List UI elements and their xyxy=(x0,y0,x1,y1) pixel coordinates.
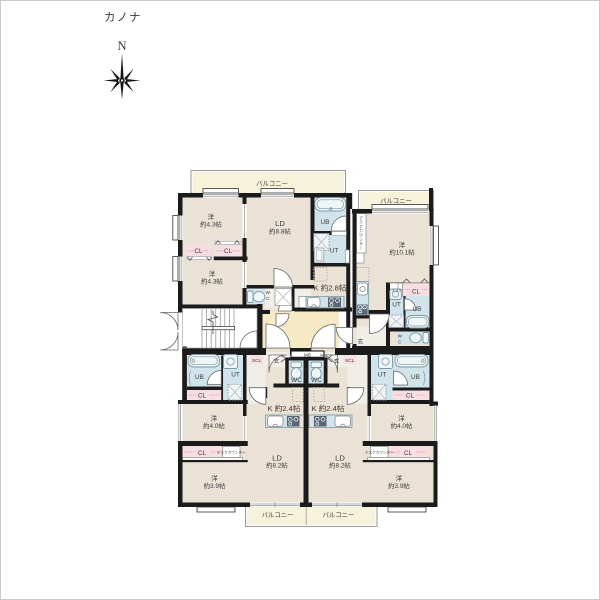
svg-text:SCL: SCL xyxy=(252,358,262,364)
svg-text:玄: 玄 xyxy=(358,338,364,346)
svg-text:洋: 洋 xyxy=(208,212,215,221)
svg-text:約10.1帖: 約10.1帖 xyxy=(389,248,415,257)
svg-text:デスクカウンター: デスクカウンター xyxy=(365,450,394,455)
svg-text:約3.9帖: 約3.9帖 xyxy=(388,481,410,490)
svg-text:バルコニー: バルコニー xyxy=(323,511,355,519)
svg-text:洋: 洋 xyxy=(211,474,218,483)
svg-text:バルコニー: バルコニー xyxy=(256,180,288,188)
svg-text:WC: WC xyxy=(311,377,322,384)
svg-text:CL: CL xyxy=(412,289,420,296)
svg-text:洋: 洋 xyxy=(396,474,403,483)
svg-text:CL: CL xyxy=(195,248,203,255)
svg-text:LD: LD xyxy=(335,453,345,462)
svg-text:MB: MB xyxy=(304,353,311,358)
svg-text:デスクカウンター: デスクカウンター xyxy=(217,450,246,455)
svg-text:約4.3帖: 約4.3帖 xyxy=(201,277,223,286)
svg-text:CL: CL xyxy=(198,393,206,400)
svg-text:約4.0帖: 約4.0帖 xyxy=(203,421,225,430)
svg-text:カノナ: カノナ xyxy=(104,11,142,24)
svg-text:CL: CL xyxy=(404,450,412,457)
svg-text:K 約2.4帖: K 約2.4帖 xyxy=(312,403,345,413)
svg-text:K 約2.4帖: K 約2.4帖 xyxy=(268,403,301,413)
svg-text:バルコニー: バルコニー xyxy=(262,511,294,519)
svg-text:W: W xyxy=(398,334,403,339)
svg-text:UT: UT xyxy=(392,302,401,309)
svg-text:LD: LD xyxy=(275,219,285,228)
svg-text:LD: LD xyxy=(272,453,282,462)
svg-text:デスク: デスク xyxy=(392,288,403,293)
svg-text:CL: CL xyxy=(406,393,414,400)
svg-text:デスクカウンター: デスクカウンター xyxy=(358,215,363,250)
svg-text:UB: UB xyxy=(195,374,204,381)
svg-text:洋: 洋 xyxy=(211,414,218,423)
svg-text:CL: CL xyxy=(224,248,232,255)
svg-text:約4.3帖: 約4.3帖 xyxy=(200,220,222,229)
svg-text:UT: UT xyxy=(231,372,240,379)
svg-text:洋: 洋 xyxy=(399,240,406,249)
svg-text:SCL: SCL xyxy=(345,358,355,364)
svg-text:CL: CL xyxy=(198,450,206,457)
svg-text:UT: UT xyxy=(330,248,339,255)
svg-text:UB: UB xyxy=(411,374,420,381)
svg-text:洋: 洋 xyxy=(209,269,216,278)
svg-text:バルコニー: バルコニー xyxy=(380,197,412,205)
svg-text:洋: 洋 xyxy=(398,414,405,423)
svg-text:玄: 玄 xyxy=(334,357,340,365)
svg-text:UB: UB xyxy=(321,219,330,226)
svg-text:WC: WC xyxy=(291,377,302,384)
svg-text:UB: UB xyxy=(413,306,422,313)
svg-text:玄: 玄 xyxy=(274,357,280,365)
svg-text:約4.0帖: 約4.0帖 xyxy=(391,421,413,430)
svg-text:N: N xyxy=(117,39,126,53)
svg-text:W: W xyxy=(266,290,271,295)
svg-text:K 約2.8帖: K 約2.8帖 xyxy=(314,283,347,293)
svg-text:UT: UT xyxy=(378,372,387,379)
svg-text:約3.9帖: 約3.9帖 xyxy=(204,481,226,490)
